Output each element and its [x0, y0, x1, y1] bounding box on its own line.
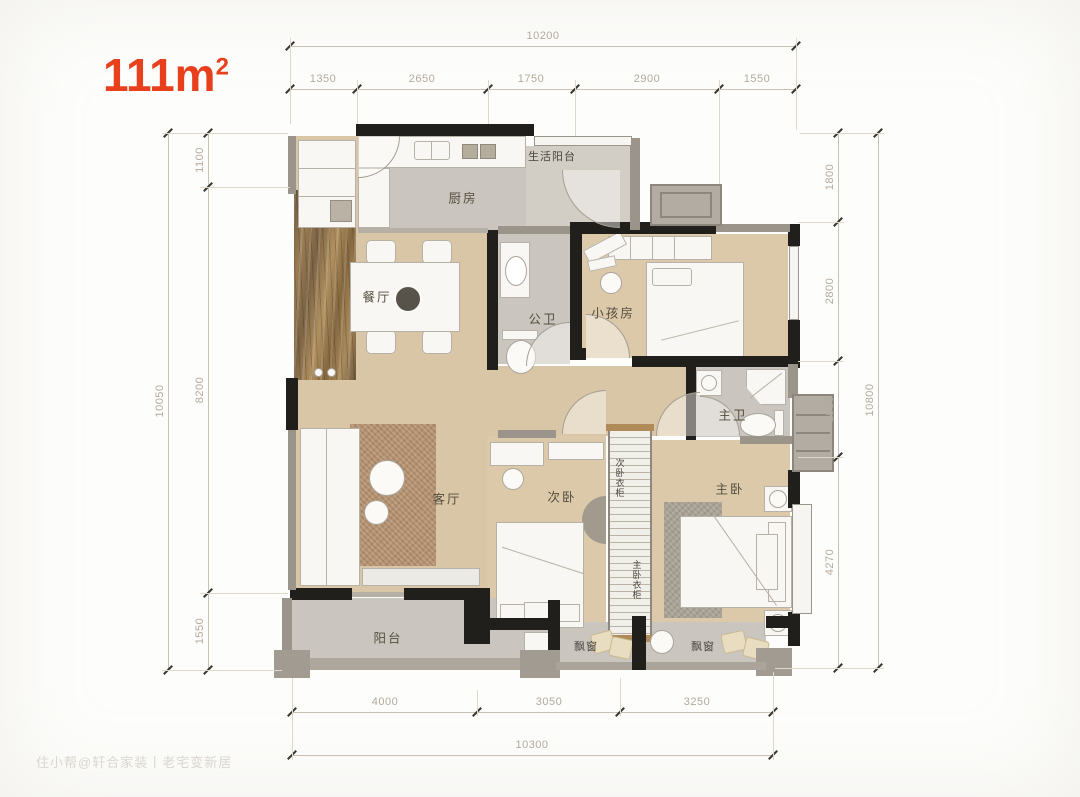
plant: [769, 490, 787, 508]
ac-slat: [796, 432, 830, 434]
dim-ext: [292, 678, 293, 760]
dim-ext: [200, 593, 288, 594]
room-label-master-bedroom: 主卧: [715, 479, 744, 498]
dim-ext: [575, 80, 576, 136]
pillar: [520, 650, 560, 678]
wall: [570, 348, 586, 360]
dim-ext: [620, 678, 621, 716]
dim-ext: [798, 222, 844, 223]
sofa: [300, 428, 360, 586]
dim-ext: [477, 690, 478, 716]
wash-basin: [505, 256, 527, 286]
watermark: 住小帮@轩合家装丨老宅变新居: [36, 752, 232, 771]
room-label-bay-window-2: 飘窗: [691, 638, 715, 654]
dining-plate: [394, 285, 422, 313]
window: [789, 246, 799, 320]
dim-top-seg: 2650: [409, 73, 435, 85]
wall: [788, 612, 800, 646]
bay-planter: [650, 630, 674, 654]
hob-burner: [462, 144, 478, 159]
pillar: [274, 650, 310, 678]
wall: [788, 470, 800, 508]
closet-divider: [674, 236, 675, 260]
dim-line: [878, 133, 879, 668]
dim-line: [292, 712, 773, 713]
window-bay-side: [792, 504, 812, 614]
dim-bottom-total: 10300: [515, 739, 548, 751]
room-label-kids-room: 小孩房: [591, 303, 635, 322]
label-second-wardrobe: 次卧衣柜: [614, 458, 627, 498]
room-label-living: 客厅: [432, 489, 461, 508]
dim-ext: [775, 668, 884, 669]
wall: [356, 124, 534, 136]
dim-line: [838, 133, 839, 668]
dim-left-total: 10050: [154, 384, 166, 417]
dim-ext: [162, 670, 282, 671]
decor-dot: [314, 368, 323, 377]
dim-line: [168, 133, 169, 670]
pouf: [369, 460, 405, 496]
dim-right-seg: 2800: [824, 278, 836, 304]
room-label-guest-bath: 公卫: [528, 309, 557, 328]
wall: [632, 356, 792, 367]
bay-sill: [556, 662, 632, 670]
wardrobe-strip: [608, 424, 652, 642]
bay-sill: [646, 662, 766, 670]
window: [534, 136, 632, 146]
mbath-sink-bowl: [701, 375, 717, 391]
dim-ext: [800, 133, 884, 134]
bedroom2-shelf: [548, 442, 604, 460]
room-label-master-bath: 主卫: [718, 405, 747, 424]
dining-chair: [366, 330, 396, 354]
room-label-balcony: 阳台: [373, 628, 402, 647]
balcony-door-frame: [352, 592, 404, 597]
dim-ext: [798, 457, 844, 458]
decor-dot: [327, 368, 336, 377]
wall: [290, 588, 352, 600]
dining-chair: [366, 240, 396, 264]
wall: [570, 222, 582, 356]
dim-top-seg: 1750: [518, 73, 544, 85]
dim-right-total: 10800: [864, 383, 876, 416]
area-sup: 2: [216, 54, 229, 81]
closet-divider: [630, 236, 631, 260]
wall: [487, 230, 498, 370]
wall: [286, 378, 298, 430]
dim-ext: [290, 38, 291, 124]
sofa-back-line: [326, 428, 327, 586]
living-rug: [350, 424, 436, 566]
wall-secondary: [740, 436, 794, 444]
room-label-life-balcony: 生活阳台: [528, 148, 576, 164]
dim-left-seg: 1550: [194, 618, 206, 644]
dim-top-seg: 2900: [634, 73, 660, 85]
wall: [632, 616, 646, 670]
wall-secondary: [498, 430, 556, 438]
dining-chair: [422, 240, 452, 264]
dim-ext: [357, 80, 358, 124]
wall-secondary: [788, 364, 798, 398]
closet-divider: [652, 236, 653, 260]
wall-secondary: [288, 136, 296, 194]
dim-ext: [719, 80, 720, 184]
dim-line: [290, 46, 796, 47]
desk-chair: [600, 272, 622, 294]
tv-console: [362, 568, 480, 586]
hob-burner: [480, 144, 496, 159]
dim-ext: [162, 133, 288, 134]
room-label-kitchen: 厨房: [448, 188, 477, 207]
cabinet-shelf-line: [298, 196, 356, 197]
toilet-tank: [502, 330, 538, 340]
dim-bottom-seg: 3250: [684, 696, 710, 708]
dim-ext: [796, 38, 797, 130]
area-value: 111m: [103, 49, 216, 101]
dim-ext: [773, 672, 774, 760]
dim-line: [292, 755, 773, 756]
label-master-wardrobe: 主卧衣柜: [631, 560, 644, 600]
bedroom2-desk: [490, 442, 544, 466]
bay-pillow: [608, 636, 634, 660]
ac-unit-inner: [660, 192, 712, 218]
wall: [490, 618, 556, 630]
dim-top-seg: 1550: [744, 73, 770, 85]
appliance: [330, 200, 352, 222]
dim-right-seg: 1930: [824, 396, 836, 422]
wall-secondary: [716, 224, 790, 232]
dim-right-seg: 4270: [824, 549, 836, 575]
dim-right-seg: 1800: [824, 164, 836, 190]
wall-secondary: [630, 138, 640, 230]
room-label-bay-window-1: 飘窗: [574, 638, 598, 654]
pouf: [364, 500, 389, 525]
wardrobe-cap: [606, 424, 654, 431]
dim-top-total: 10200: [526, 30, 559, 42]
dim-ext: [200, 187, 290, 188]
wall-secondary: [498, 226, 570, 234]
sink-divider: [431, 142, 432, 159]
kitchen-sink: [414, 141, 450, 160]
wall-secondary: [288, 430, 296, 590]
dim-left-seg: 8200: [194, 377, 206, 403]
floorplan-page: 111m2: [0, 0, 1080, 797]
kids-pillow: [652, 268, 692, 286]
wall-light: [358, 228, 488, 233]
dim-top-seg: 1350: [310, 73, 336, 85]
bedroom2-chair: [502, 468, 524, 490]
ac-slat: [796, 450, 830, 452]
dim-left-seg: 1100: [194, 147, 206, 173]
dim-ext: [798, 361, 844, 362]
room-label-second-bedroom: 次卧: [547, 487, 576, 506]
dining-chair: [422, 330, 452, 354]
balcony-rail: [292, 658, 554, 670]
area-title: 111m2: [103, 48, 229, 102]
wall: [464, 588, 490, 644]
dim-ext: [488, 80, 489, 124]
dim-bottom-seg: 3050: [536, 696, 562, 708]
cabinet-shelf-line: [298, 168, 356, 169]
room-label-dining: 餐厅: [362, 287, 391, 306]
dim-bottom-seg: 4000: [372, 696, 398, 708]
